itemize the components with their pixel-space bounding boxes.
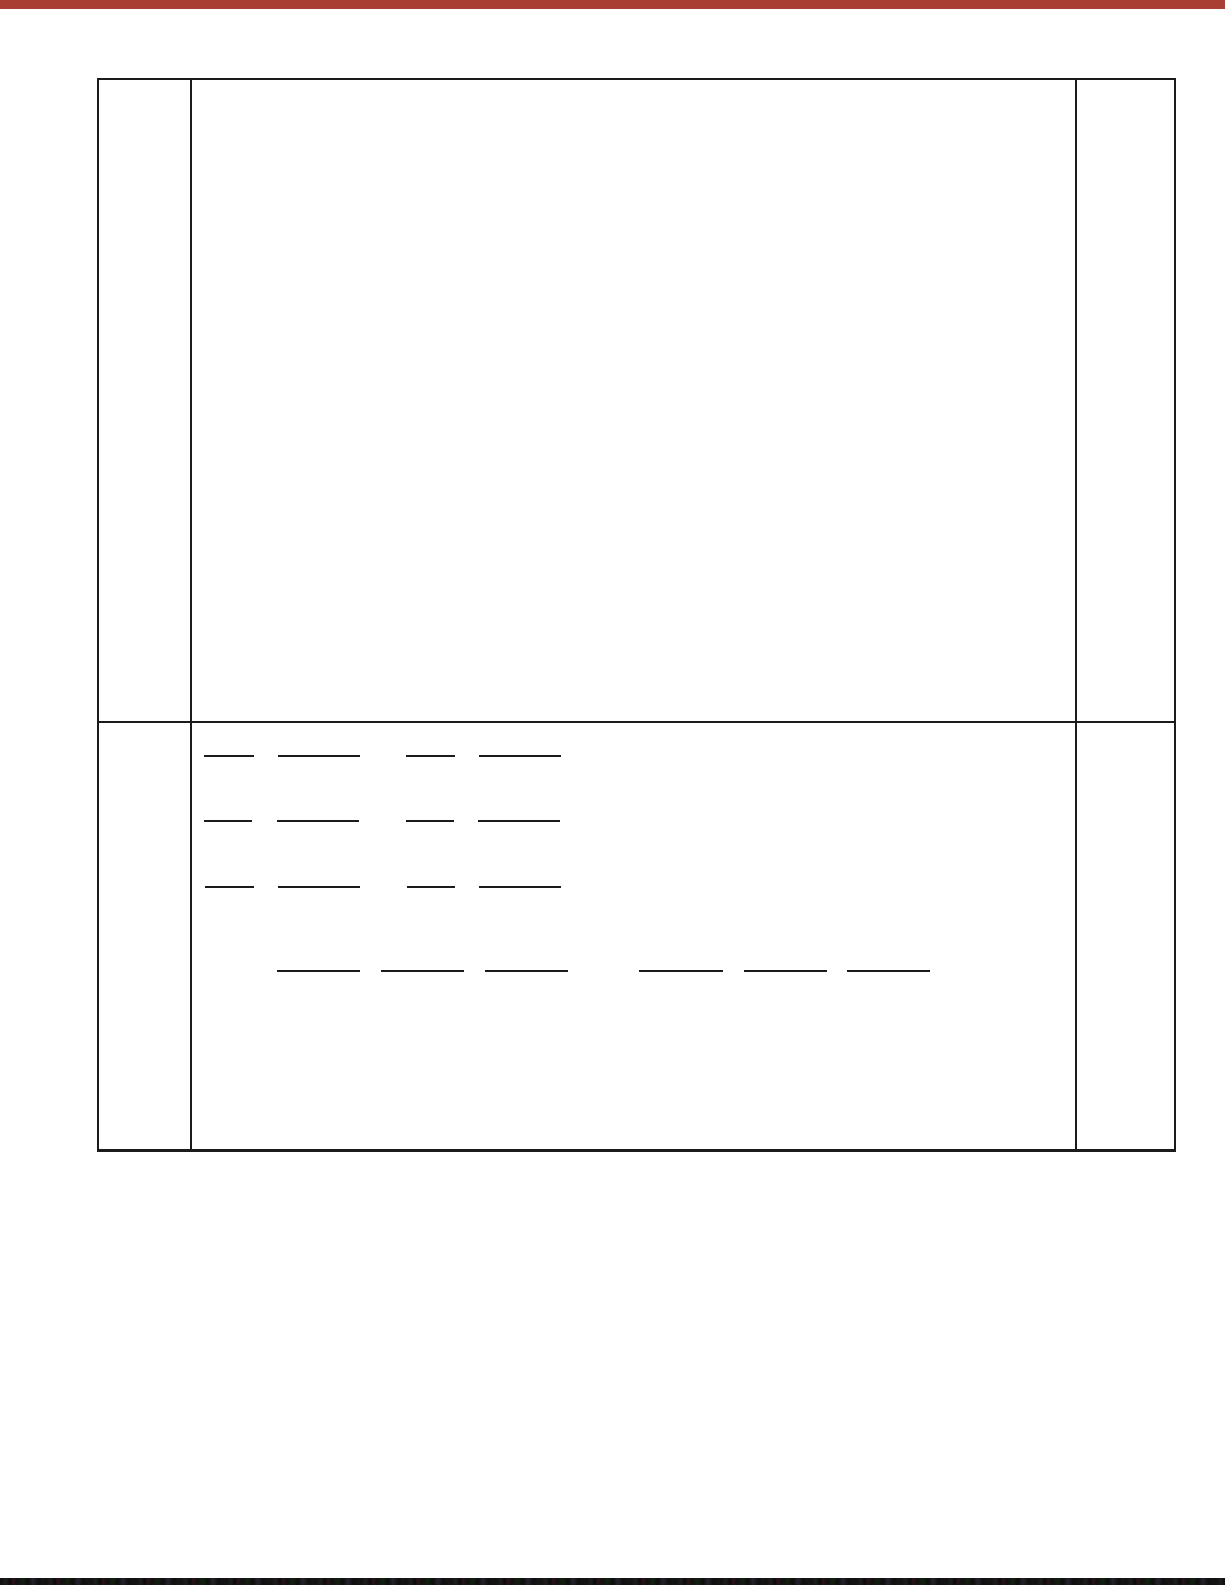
- bottom-scan-artifact-bar: [0, 1578, 1225, 1585]
- answer-blank-line: [406, 755, 455, 757]
- answer-blank-line: [639, 970, 723, 972]
- top-scan-artifact-bar: [0, 0, 1225, 9]
- answer-blank-row-4: [192, 970, 1075, 972]
- answer-blank-line: [204, 820, 252, 822]
- table-cell-row2-right: [1077, 723, 1174, 1149]
- answer-blank-line: [479, 755, 561, 757]
- answer-blank-row-2: [192, 820, 1075, 822]
- worksheet-table: [97, 78, 1176, 1152]
- answer-blank-line: [278, 886, 360, 888]
- answer-blank-row-1: [192, 755, 1075, 757]
- table-cell-row2-middle answer-blanks-cell: [192, 723, 1077, 1149]
- table-cell-row2-left: [99, 723, 192, 1149]
- answer-blank-line: [478, 820, 560, 822]
- answer-blank-line: [381, 970, 464, 972]
- answer-blank-line: [407, 886, 455, 888]
- answer-blank-row-3: [192, 886, 1075, 888]
- answer-blank-line: [205, 886, 254, 888]
- answer-blank-line: [277, 970, 360, 972]
- answer-blank-line: [204, 755, 254, 757]
- answer-blank-line: [847, 970, 930, 972]
- answer-blank-line: [277, 820, 359, 822]
- answer-blank-line: [479, 886, 561, 888]
- answer-blank-line: [406, 820, 454, 822]
- answer-blank-line: [485, 970, 568, 972]
- answer-blank-line: [744, 970, 827, 972]
- answer-blank-line: [278, 755, 360, 757]
- scanned-document-page: [0, 0, 1225, 1585]
- answer-blanks-container: [192, 723, 1075, 1149]
- table-cell-row1-right: [1077, 80, 1174, 723]
- table-cell-row1-middle: [192, 80, 1077, 723]
- table-cell-row1-left: [99, 80, 192, 723]
